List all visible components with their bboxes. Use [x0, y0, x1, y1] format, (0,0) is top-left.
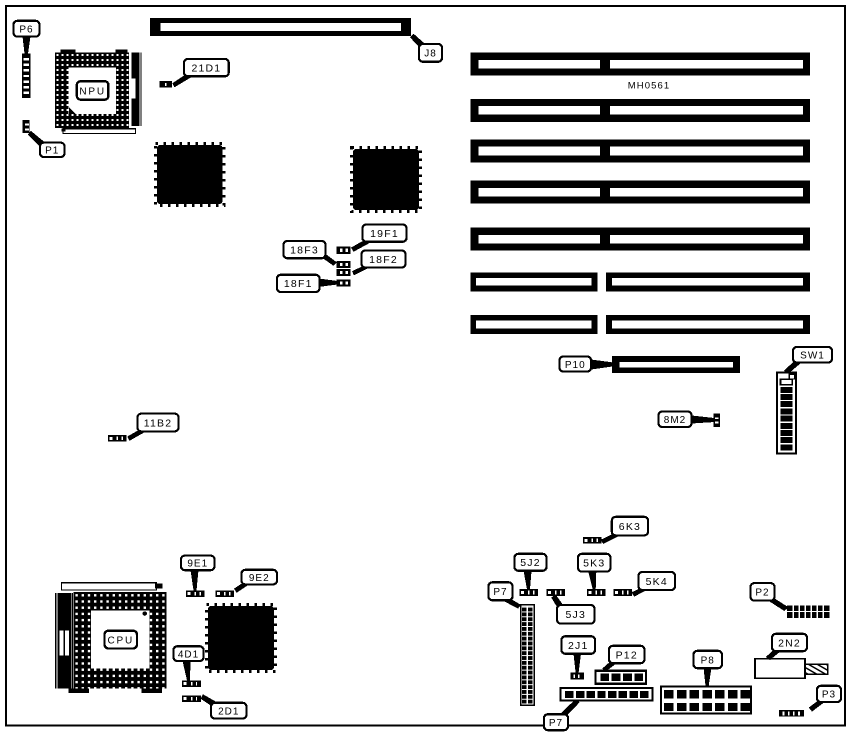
svg-text:5K3: 5K3 — [583, 558, 605, 570]
svg-text:P10: P10 — [565, 360, 586, 371]
svg-text:P7: P7 — [493, 587, 507, 598]
svg-text:MH0561: MH0561 — [628, 81, 671, 92]
svg-text:P3: P3 — [822, 690, 836, 701]
svg-text:6K3: 6K3 — [619, 521, 641, 533]
svg-text:4D1: 4D1 — [178, 649, 199, 660]
svg-text:5J3: 5J3 — [565, 609, 586, 621]
svg-text:SW1: SW1 — [800, 351, 825, 362]
svg-text:P6: P6 — [19, 25, 33, 36]
svg-text:2J1: 2J1 — [568, 640, 589, 652]
svg-text:18F3: 18F3 — [290, 244, 319, 256]
svg-text:18F2: 18F2 — [369, 254, 398, 266]
svg-text:5K4: 5K4 — [646, 576, 668, 588]
svg-text:P12: P12 — [616, 649, 638, 661]
svg-text:21D1: 21D1 — [191, 62, 221, 74]
svg-text:9E1: 9E1 — [187, 559, 208, 570]
svg-text:9E2: 9E2 — [249, 573, 270, 584]
svg-text:CPU: CPU — [108, 636, 135, 647]
svg-text:P7: P7 — [549, 718, 563, 729]
svg-text:NPU: NPU — [79, 87, 106, 98]
svg-text:2D1: 2D1 — [218, 706, 239, 717]
svg-text:19F1: 19F1 — [370, 228, 399, 240]
svg-text:P1: P1 — [45, 146, 59, 157]
svg-text:P8: P8 — [701, 655, 715, 666]
svg-text:8M2: 8M2 — [664, 415, 686, 426]
svg-text:18F1: 18F1 — [284, 278, 313, 290]
svg-text:J8: J8 — [424, 49, 437, 60]
svg-text:P2: P2 — [755, 588, 769, 599]
svg-text:11B2: 11B2 — [144, 417, 173, 429]
svg-text:5J2: 5J2 — [520, 557, 541, 569]
svg-text:2N2: 2N2 — [778, 637, 801, 649]
